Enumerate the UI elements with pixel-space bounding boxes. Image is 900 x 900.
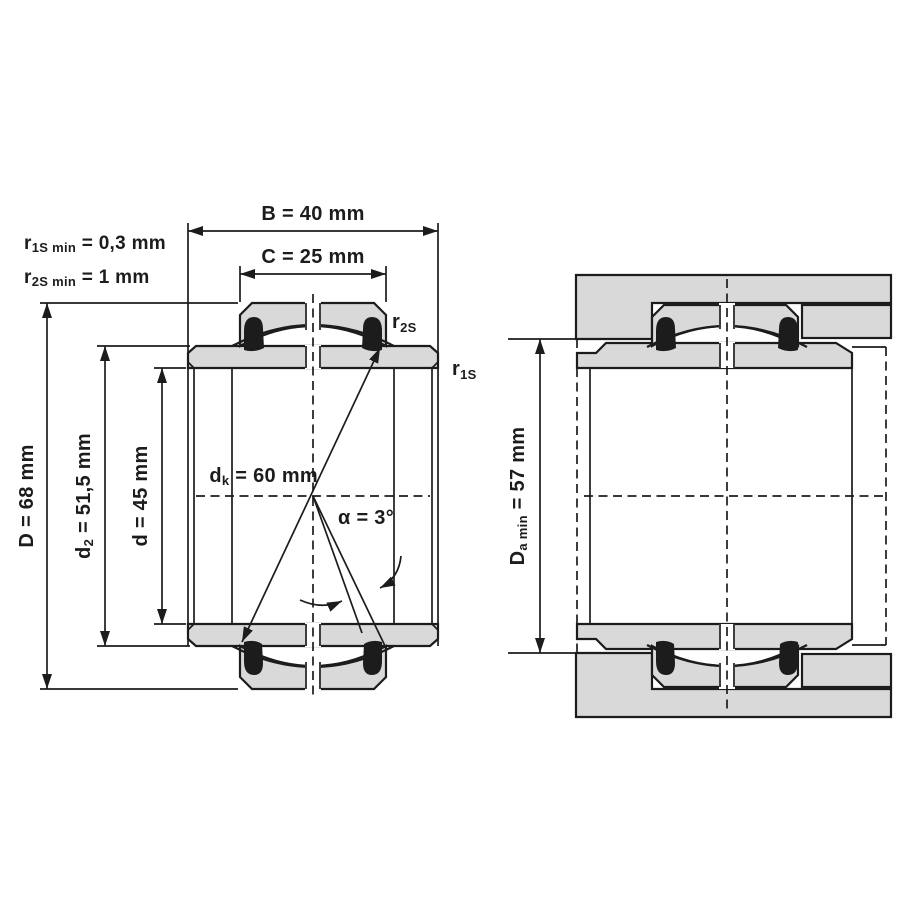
mounted-inner-ring-bottom-flange [577, 624, 852, 649]
bearing-section-figure [188, 223, 438, 700]
label-r1s-callout: r1S [452, 358, 477, 382]
mounted-seal-top-right [778, 317, 798, 351]
label-C: C = 25 mm [261, 246, 364, 268]
label-D: D = 68 mm [16, 444, 38, 547]
dimension-d: d = 45 mm [130, 368, 186, 624]
mounting-figure [576, 275, 891, 717]
spacer-ring-bottom [802, 654, 891, 687]
tilt-curved-arrow-right [380, 556, 401, 588]
mounted-seal-bottom-right [779, 641, 798, 675]
label-r2s-min: r2S min = 1 mm [24, 267, 150, 289]
spacer-ring-top [802, 305, 891, 338]
seal-bottom-right [363, 641, 382, 675]
mounted-seal-bottom-left [656, 641, 675, 675]
label-r2s-callout: r2S [392, 311, 417, 335]
dimension-C: C = 25 mm [240, 246, 386, 302]
label-dk: dk = 60 mm [209, 465, 318, 488]
label-alpha: α = 3° [338, 507, 394, 529]
mounted-inner-ring-top-flange [577, 343, 852, 368]
label-r1s-min: r1S min = 0,3 mm [24, 233, 166, 255]
tilt-curved-arrow-left [300, 600, 342, 605]
label-B: B = 40 mm [261, 203, 364, 225]
mounted-seal-top-left [656, 317, 676, 351]
seal-top-left [244, 317, 264, 351]
bore-edges [188, 223, 438, 646]
dk-dimension-arrow [242, 348, 380, 642]
label-d: d = 45 mm [130, 445, 152, 546]
drawing-svg: B = 40 mm C = 25 mm D = 68 mm d2 = 51,5 … [0, 0, 900, 900]
bearing-dimension-drawing: B = 40 mm C = 25 mm D = 68 mm d2 = 51,5 … [0, 0, 900, 900]
seal-bottom-left [244, 641, 263, 675]
seal-top-right [362, 317, 382, 351]
dimension-B: B = 40 mm [188, 203, 438, 231]
dimension-Da: Da min = 57 mm [507, 339, 576, 653]
label-d2: d2 = 51,5 mm [73, 433, 96, 559]
label-Da-min: Da min = 57 mm [507, 427, 530, 566]
